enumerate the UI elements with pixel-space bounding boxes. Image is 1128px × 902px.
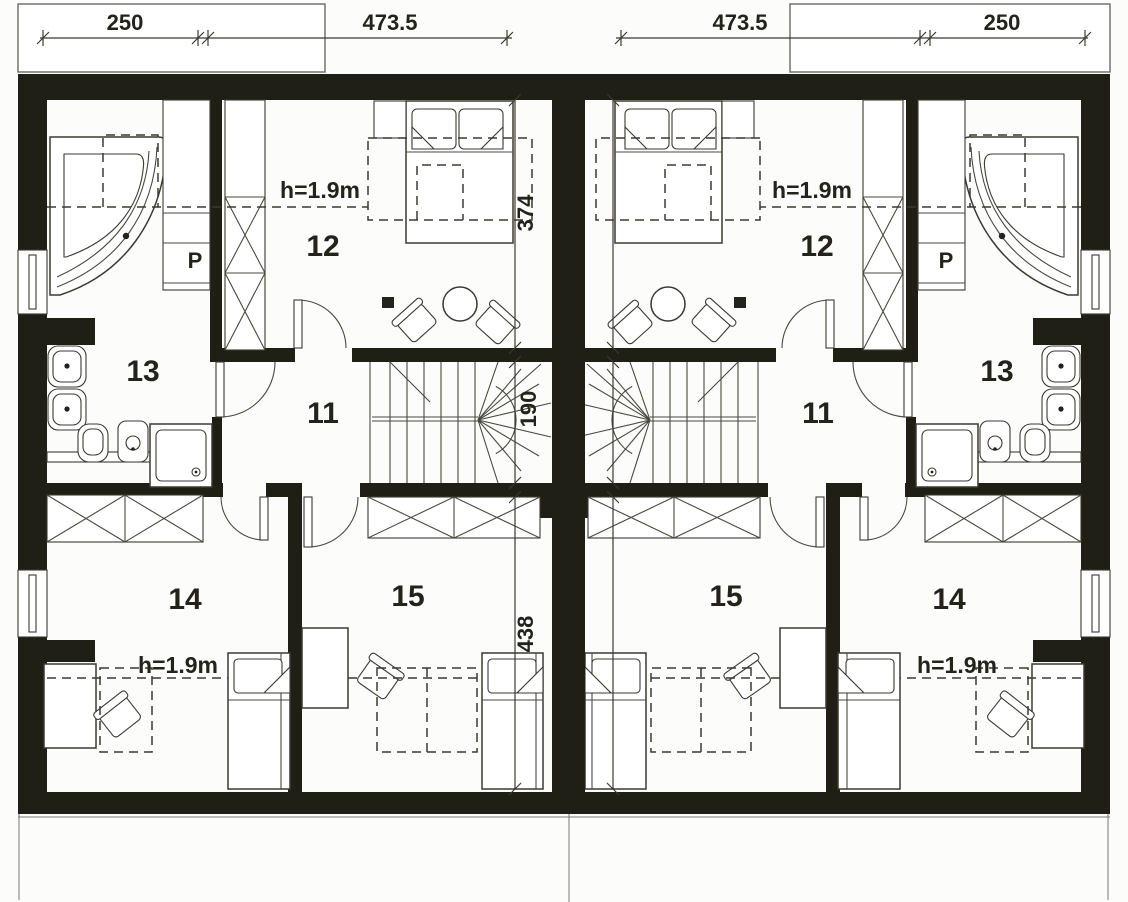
room-label-14-left: 14	[168, 583, 202, 616]
room-label-12-right: 12	[800, 230, 833, 263]
closet-label-left: P	[188, 248, 203, 273]
room-label-13-left: 13	[126, 355, 159, 388]
room-label-11-left: 11	[307, 397, 339, 430]
duplex-attic-floor-plan: 250 473.5 473.5 250 h=1.9m 12 P 13 11 14…	[0, 0, 1128, 902]
floor-plan-page: 250 473.5 473.5 250 h=1.9m 12 P 13 11 14…	[0, 0, 1128, 902]
room-label-11-right: 11	[802, 397, 834, 430]
site-lines	[18, 814, 1110, 902]
dim-label-473-left: 473.5	[362, 10, 417, 35]
room-label-15-right: 15	[709, 580, 742, 613]
room-label-12-left: 12	[306, 230, 339, 263]
room-label-14-right: 14	[932, 583, 966, 616]
height-note-right-bottom: h=1.9m	[917, 652, 997, 678]
vdim-190: 190	[516, 391, 541, 428]
room-label-15-left: 15	[391, 580, 424, 613]
dim-label-473-right: 473.5	[712, 10, 767, 35]
closet-label-right: P	[939, 248, 954, 273]
vdim-438: 438	[513, 616, 538, 653]
height-note-left-bottom: h=1.9m	[138, 652, 218, 678]
vdim-374: 374	[513, 194, 538, 231]
room-label-13-right: 13	[980, 355, 1013, 388]
party-wall	[552, 74, 585, 814]
height-note-left-top: h=1.9m	[280, 177, 360, 203]
dim-label-250-left: 250	[107, 10, 144, 35]
height-note-right-top: h=1.9m	[772, 177, 852, 203]
dimension-strip: 250 473.5 473.5 250	[18, 4, 1110, 72]
dim-label-250-right: 250	[984, 10, 1021, 35]
